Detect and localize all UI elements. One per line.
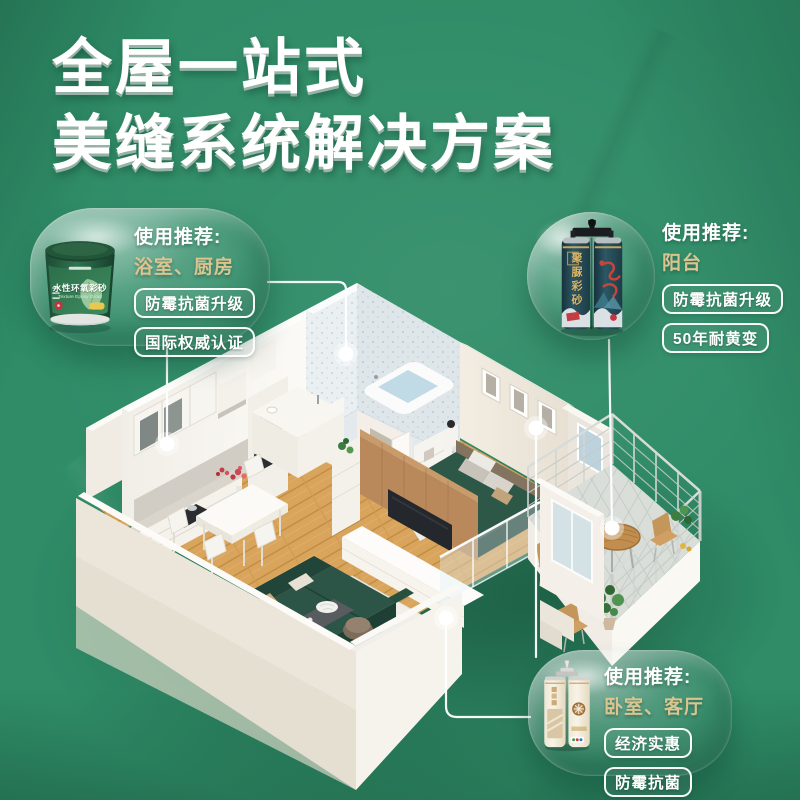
marker-balcony: [600, 516, 624, 540]
marker-kitchen: [155, 432, 179, 456]
callout-balcony: 使用推荐: 阳台 防霉抗菌升级 50年耐黄变: [662, 218, 800, 353]
feature-tag: 防霉抗菌升级: [134, 288, 255, 318]
marker-living-room: [434, 606, 458, 630]
feature-tag: 50年耐黄变: [662, 323, 769, 353]
recommendation-heading: 使用推荐:: [604, 662, 734, 689]
marker-bathroom: [334, 342, 358, 366]
callout-bathroom-kitchen: 使用推荐: 浴室、厨房 防霉抗菌升级 国际权威认证: [134, 222, 284, 357]
feature-tag: 防霉抗菌: [604, 767, 692, 797]
recommendation-heading: 使用推荐:: [662, 218, 800, 245]
epoxy-grout-bucket-image: [34, 226, 126, 336]
feature-tag: 经济实惠: [604, 728, 692, 758]
feature-tag: 国际权威认证: [134, 327, 255, 357]
recommendation-rooms: 阳台: [662, 248, 800, 275]
poster: 全屋一站式 美缝系统解决方案: [0, 0, 800, 800]
recommendation-rooms: 浴室、厨房: [134, 252, 284, 279]
recommendation-heading: 使用推荐:: [134, 222, 284, 249]
economy-cartridge-image: [534, 660, 600, 752]
recommendation-rooms: 卧室、客厅: [604, 692, 734, 719]
feature-tag: 防霉抗菌升级: [662, 284, 783, 314]
callout-bedroom-living: 使用推荐: 卧室、客厅 经济实惠 防霉抗菌: [604, 662, 734, 797]
polyurea-cartridge-image: [543, 218, 641, 337]
marker-bedroom: [524, 416, 548, 440]
